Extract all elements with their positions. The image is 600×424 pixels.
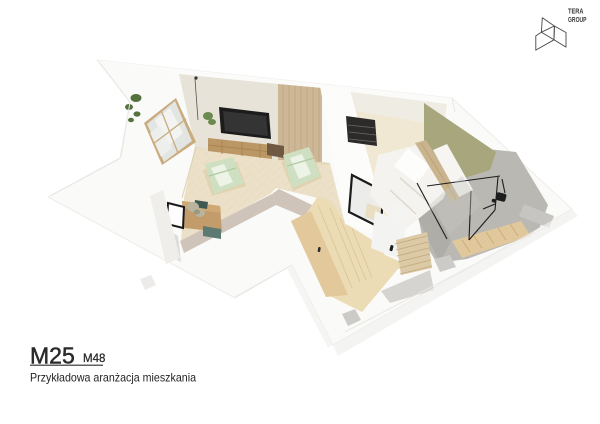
svg-text:M48: M48 xyxy=(83,353,105,365)
svg-text:GROUP: GROUP xyxy=(568,17,587,24)
svg-text:Przykładowa aranżacja mieszkan: Przykładowa aranżacja mieszkania xyxy=(30,371,196,385)
svg-text:TERA: TERA xyxy=(568,9,584,16)
